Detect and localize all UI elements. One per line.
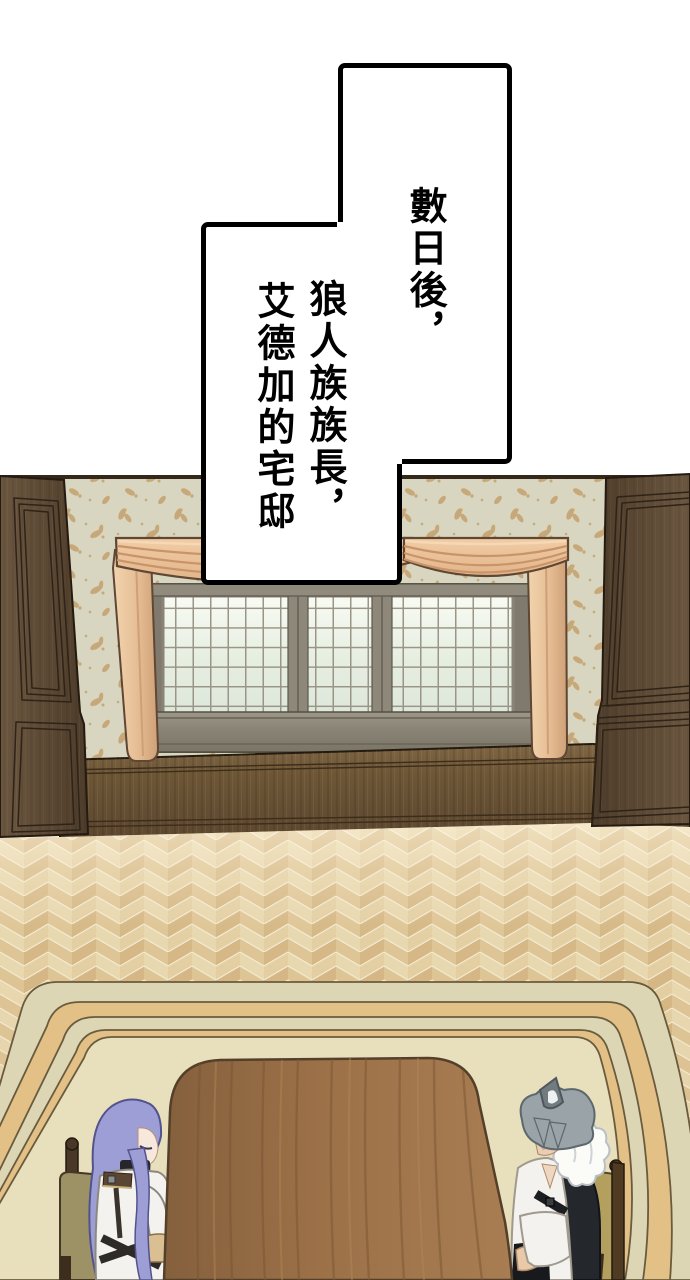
narration-column-1: 數日後， bbox=[404, 186, 446, 354]
comic-page: 數日後， 狼人族族長， 艾德加的宅邸 bbox=[0, 0, 690, 1280]
table bbox=[164, 1058, 512, 1280]
character-left bbox=[89, 1099, 172, 1280]
narration-column-3: 艾德加的宅邸 bbox=[252, 281, 294, 533]
wall-pillar-right bbox=[592, 474, 690, 826]
narration-column-2: 狼人族族長， bbox=[304, 279, 346, 531]
buckle bbox=[108, 1176, 115, 1183]
window bbox=[146, 584, 536, 752]
sleeve bbox=[520, 1212, 570, 1266]
